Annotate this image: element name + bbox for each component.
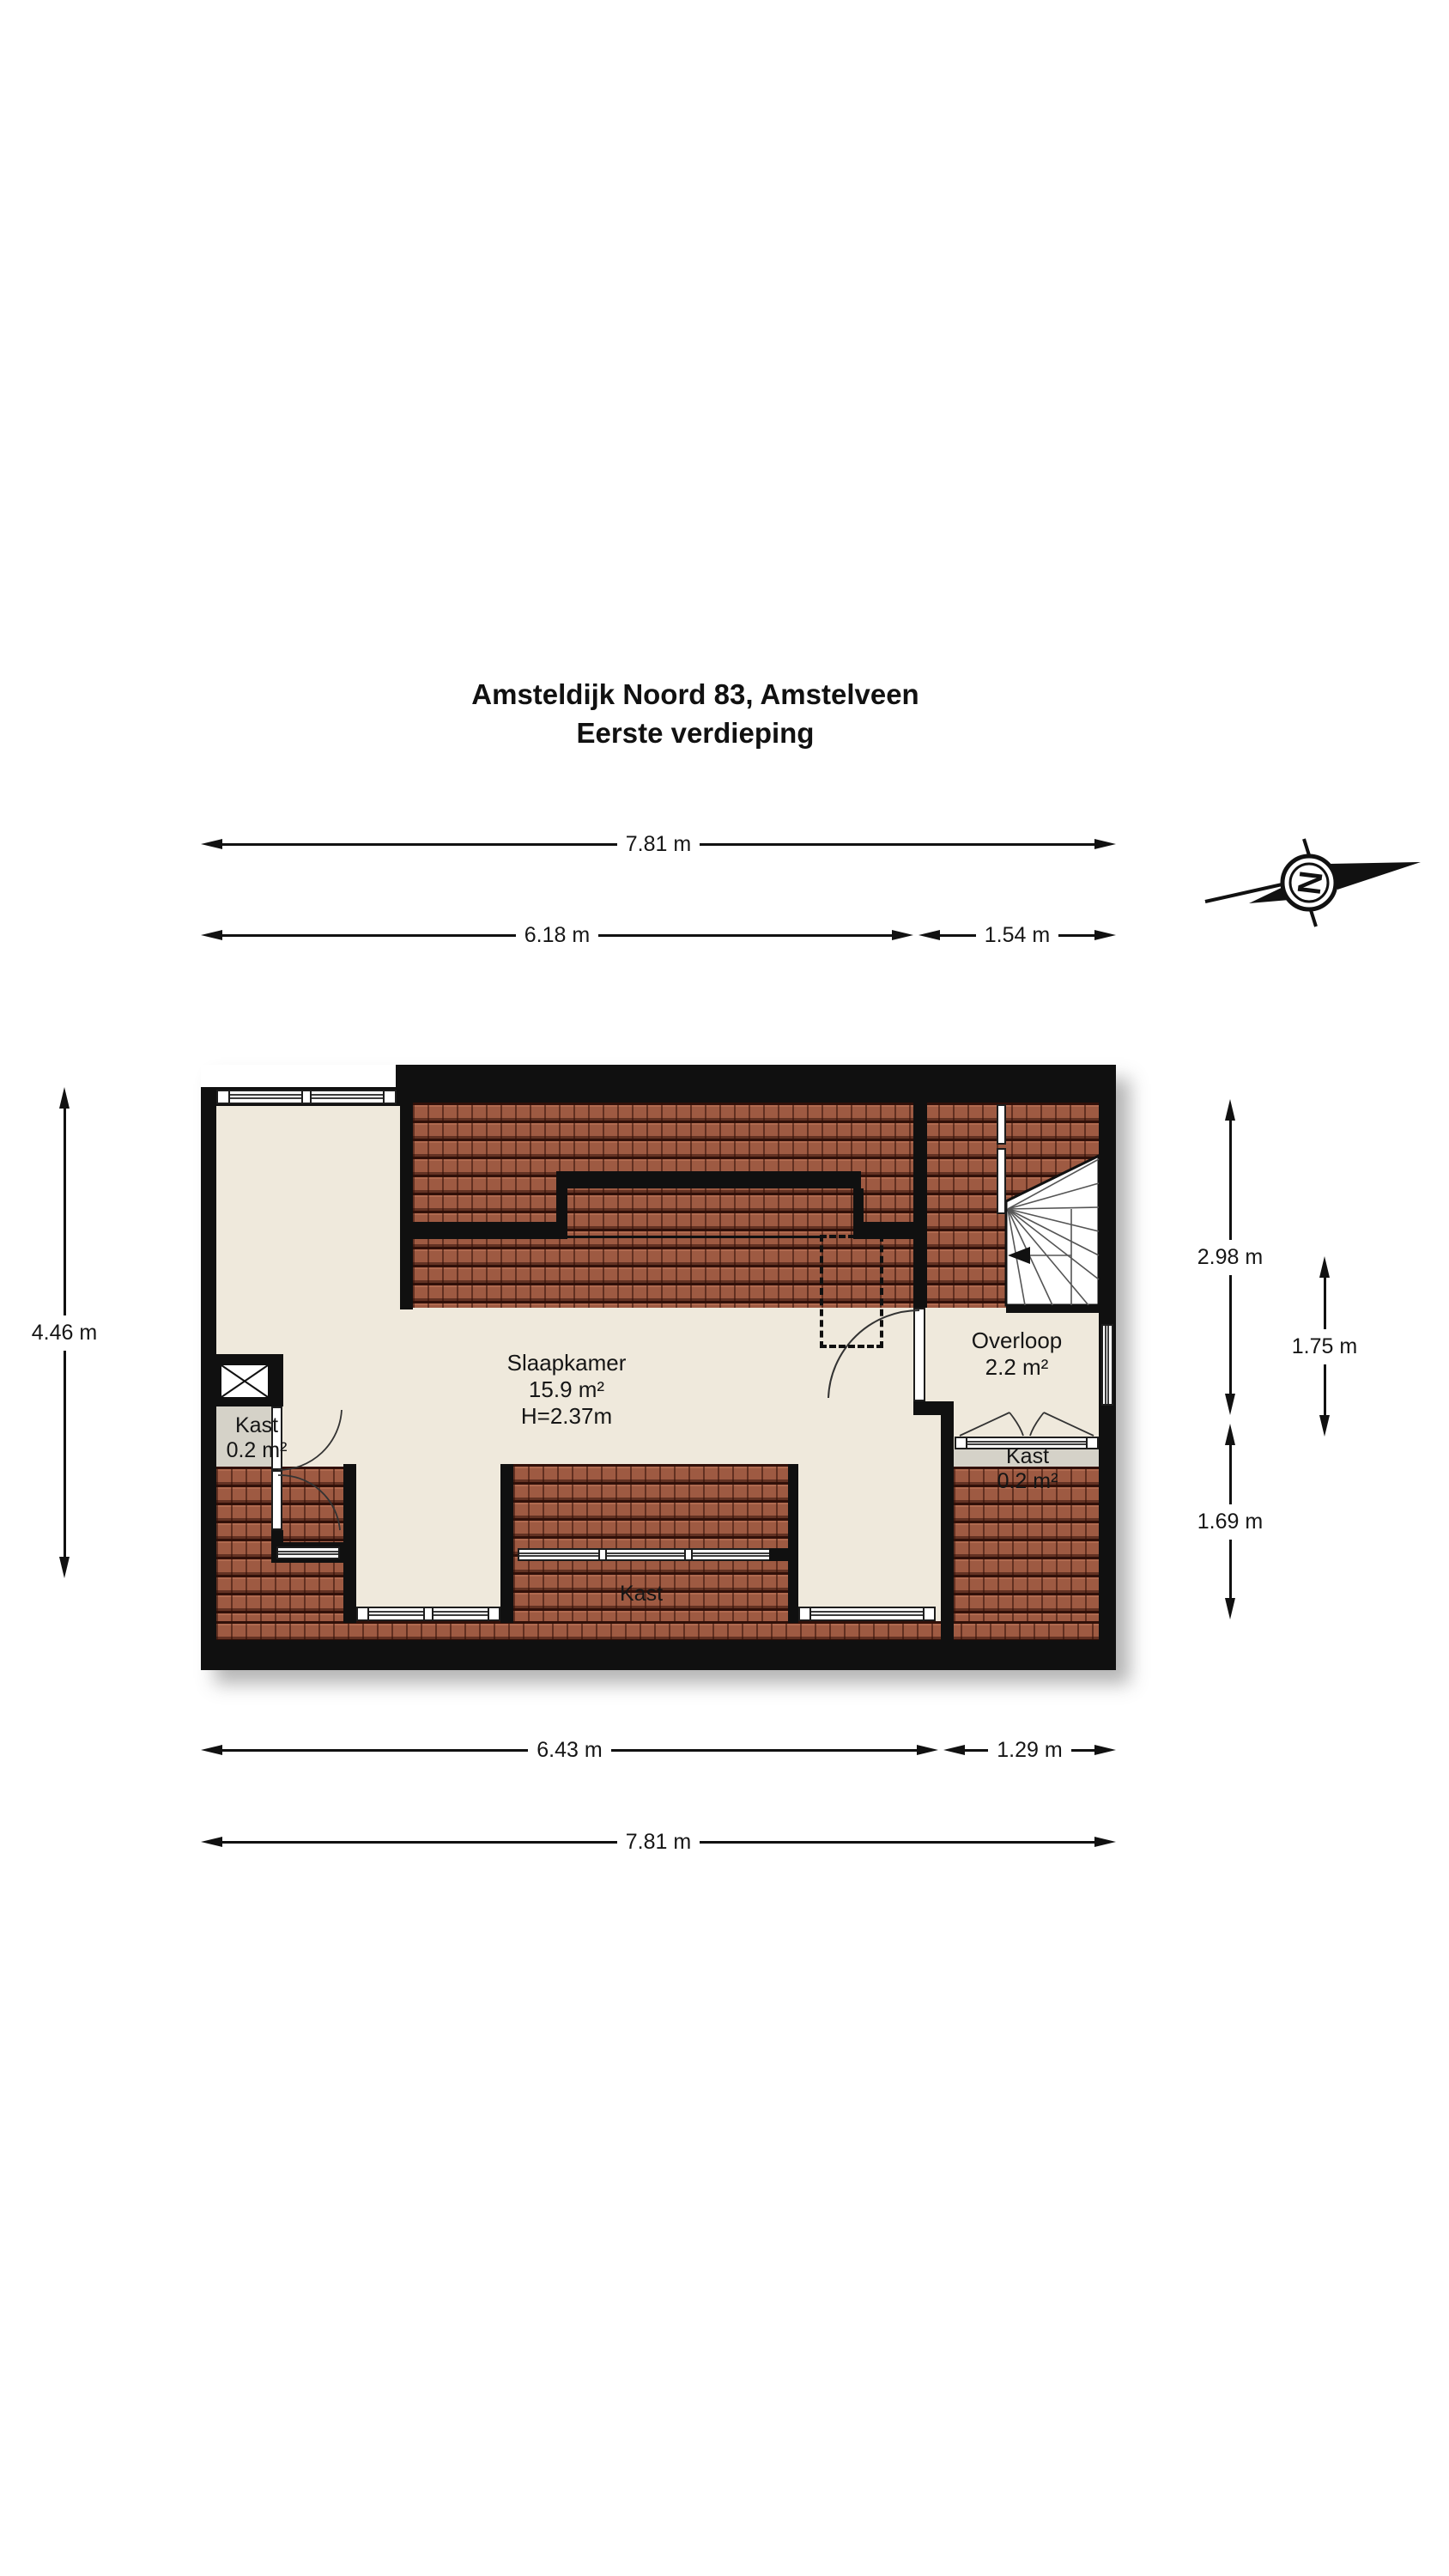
- stairs-side-strip-lower: [997, 1148, 1006, 1214]
- arrow-down-icon: [1225, 1394, 1235, 1415]
- stairs: [994, 1103, 1099, 1317]
- plan-title: Amsteldijk Noord 83, Amstelveen Eerste v…: [295, 675, 1095, 752]
- wall-divider: [913, 1103, 927, 1308]
- window-post: [356, 1607, 369, 1621]
- label-slaapkamer: Slaapkamer 15.9 m² H=2.37m: [481, 1350, 652, 1430]
- arrow-up-icon: [1225, 1099, 1235, 1121]
- dim-right-upper-label: 2.98 m: [1197, 1240, 1263, 1275]
- window-post: [216, 1090, 230, 1104]
- arrow-right-icon: [1094, 1837, 1116, 1847]
- arrow-up-icon: [1319, 1256, 1330, 1278]
- arrow-right-icon: [1094, 1745, 1116, 1755]
- label-overloop: Overloop 2.2 m²: [946, 1327, 1088, 1381]
- dim-top-full: 7.81 m: [201, 832, 1116, 856]
- arrow-left-icon: [201, 930, 222, 940]
- room-name: Kast: [594, 1582, 688, 1607]
- knee-wall-thin-line: [567, 1236, 822, 1238]
- dim-bottom-full-label: 7.81 m: [617, 1830, 700, 1855]
- dim-bottom-left-label: 6.43 m: [528, 1738, 610, 1763]
- dim-top-left-label: 6.18 m: [516, 923, 598, 948]
- room-area: 2.2 m²: [946, 1354, 1088, 1381]
- arrow-right-icon: [892, 930, 913, 940]
- window-top-left: [216, 1090, 397, 1104]
- arrow-right-icon: [1094, 930, 1116, 940]
- window-small-left: [276, 1546, 340, 1559]
- dim-right-lower: 1.69 m: [1218, 1424, 1242, 1619]
- wall-dormer-right-a: [788, 1464, 798, 1623]
- window-right: [1101, 1324, 1113, 1406]
- arrow-left-icon: [201, 1837, 222, 1847]
- dim-right-upper: 2.98 m: [1218, 1099, 1242, 1415]
- knee-wall-high: [556, 1171, 861, 1188]
- window-post: [423, 1607, 433, 1621]
- room-name: Kast: [206, 1413, 307, 1438]
- dim-right-lower-label: 1.69 m: [1197, 1504, 1263, 1540]
- room-area: 0.2 m²: [960, 1469, 1095, 1494]
- arrow-left-icon: [201, 839, 222, 849]
- arrow-down-icon: [59, 1557, 70, 1578]
- arrow-left-icon: [919, 930, 940, 940]
- room-name: Overloop: [946, 1327, 1088, 1354]
- room-height: H=2.37m: [481, 1403, 652, 1430]
- window-post: [383, 1090, 397, 1104]
- label-kast-left: Kast 0.2 m²: [206, 1413, 307, 1463]
- dim-top-full-label: 7.81 m: [617, 832, 700, 857]
- wall-jog: [913, 1401, 954, 1415]
- room-name: Slaapkamer: [481, 1350, 652, 1376]
- dim-top-right-label: 1.54 m: [976, 923, 1058, 948]
- dim-right-inner-label: 1.75 m: [1292, 1329, 1357, 1364]
- closet-bifold-doors: [955, 1408, 1099, 1438]
- dim-right-inner: 1.75 m: [1313, 1256, 1337, 1437]
- under-roof-door-arc: [275, 1472, 347, 1534]
- wall-top: [396, 1065, 1116, 1103]
- plan-title-line1: Amsteldijk Noord 83, Amstelveen: [295, 675, 1095, 714]
- window-dormer-left: [356, 1607, 500, 1621]
- arrow-up-icon: [59, 1087, 70, 1109]
- room-area: 15.9 m²: [481, 1376, 652, 1403]
- arrow-up-icon: [1225, 1424, 1235, 1445]
- dim-bottom-full: 7.81 m: [201, 1830, 1116, 1854]
- window-post: [301, 1090, 312, 1104]
- room-name: Kast: [960, 1444, 1095, 1469]
- plan-title-line2: Eerste verdieping: [295, 714, 1095, 752]
- window-post: [488, 1607, 500, 1621]
- wall-dormer-left-b: [500, 1464, 513, 1623]
- floorplan-page: { "title": { "line1": "Amsteldijk Noord …: [0, 0, 1449, 2576]
- roof-tiles-bottom-strip: [216, 1621, 1099, 1640]
- arrow-down-icon: [1319, 1415, 1330, 1437]
- arrow-right-icon: [1094, 839, 1116, 849]
- wall-right-lower: [941, 1415, 954, 1640]
- room-area: 0.2 m²: [206, 1438, 307, 1463]
- dim-top-right: 1.54 m: [919, 923, 1116, 947]
- wall-dormer-left-a: [343, 1464, 356, 1623]
- compass-letter: N: [1289, 869, 1328, 896]
- chimney-dashed-box: [820, 1235, 883, 1348]
- window-post: [684, 1548, 693, 1561]
- dim-bottom-left: 6.43 m: [201, 1738, 938, 1762]
- window-post: [798, 1607, 811, 1621]
- label-kast-right: Kast 0.2 m²: [960, 1444, 1095, 1494]
- wall-tile-edge-left: [400, 1103, 413, 1309]
- window-post: [923, 1607, 936, 1621]
- closet-middle-front: [518, 1548, 772, 1561]
- dim-bottom-right: 1.29 m: [943, 1738, 1116, 1762]
- label-kast-bottom: Kast: [594, 1582, 688, 1607]
- stairs-side-strip-upper: [997, 1104, 1006, 1145]
- arrow-down-icon: [1225, 1598, 1235, 1619]
- dim-top-left: 6.18 m: [201, 923, 913, 947]
- compass-north-icon: N: [1191, 814, 1432, 951]
- window-post: [598, 1548, 607, 1561]
- dim-side-left-label: 4.46 m: [32, 1315, 97, 1351]
- dim-bottom-right-label: 1.29 m: [988, 1738, 1070, 1763]
- arrow-right-icon: [917, 1745, 938, 1755]
- arrow-left-icon: [943, 1745, 965, 1755]
- dim-side-left: 4.46 m: [52, 1087, 76, 1578]
- arrow-left-icon: [201, 1745, 222, 1755]
- knee-wall-left: [400, 1222, 561, 1239]
- wall-stub-closet-right: [769, 1548, 788, 1561]
- shaft-x-icon: [221, 1365, 268, 1397]
- window-dormer-right: [798, 1607, 936, 1621]
- wall-bottom: [201, 1640, 1116, 1670]
